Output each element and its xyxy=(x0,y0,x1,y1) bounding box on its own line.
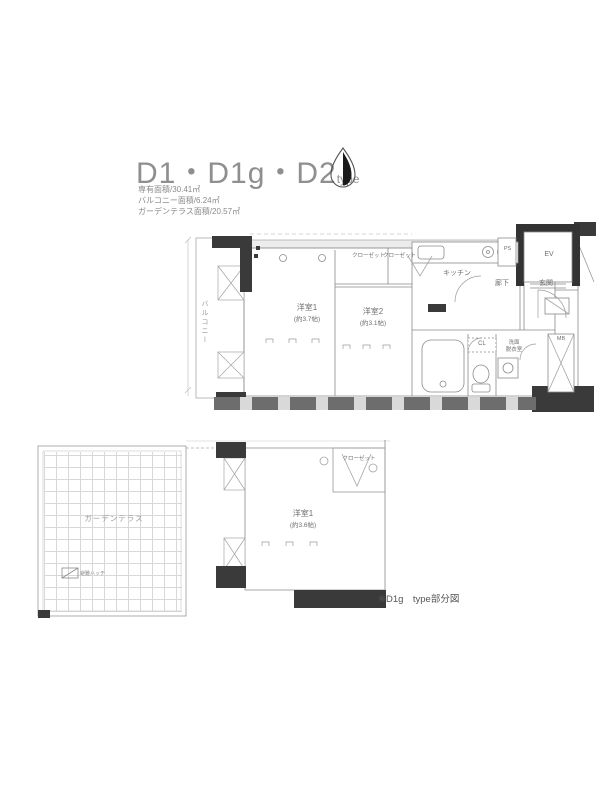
north-compass-icon xyxy=(328,146,358,188)
pipe-shaft-icon xyxy=(498,238,516,266)
sub-plan-windows xyxy=(224,458,245,570)
garden-terrace-label: ガーデンテラス xyxy=(74,513,154,524)
closet1-label: クローゼット xyxy=(352,251,382,259)
washer-drum-icon xyxy=(503,363,513,373)
room1-size: (約3.7帖) xyxy=(276,313,338,323)
escape-hatch-label: 避難ハッチ xyxy=(80,570,105,577)
hall-label: 廊下 xyxy=(488,278,516,288)
bath-faucet-icon xyxy=(440,381,446,387)
meter-box-label: MB xyxy=(550,336,572,342)
ceiling-light-icon xyxy=(319,255,326,262)
sub-room1-name: 洋室1 xyxy=(293,509,313,518)
entrance-label: 玄関 xyxy=(532,278,560,288)
sub-room1-label: 洋室1 (約3.6帖) xyxy=(272,508,334,529)
exterior-dashed-wall xyxy=(214,397,536,410)
hanger-ring-icon xyxy=(369,464,377,472)
toilet-tank-icon xyxy=(472,384,490,392)
hall-door-arc xyxy=(455,276,481,302)
room1-name: 洋室1 xyxy=(297,303,317,312)
toilet-icon xyxy=(473,365,489,383)
room2-name: 洋室2 xyxy=(363,307,383,316)
cl-label: CL xyxy=(469,341,495,347)
sub-room1-size: (約3.6帖) xyxy=(272,519,334,529)
ceiling-light-icon xyxy=(280,255,287,262)
subplan-note: ※D1g type部分図 xyxy=(378,591,459,605)
balcony-label: バルコニー xyxy=(199,294,209,350)
kitchen-label: キッチン xyxy=(436,268,478,278)
elevator-label: EV xyxy=(538,251,560,258)
ceiling-light-icon xyxy=(320,457,328,465)
sub-plan-walls xyxy=(38,440,390,616)
sub-closet-label: クローゼット xyxy=(336,454,382,462)
washroom-line2: 脱衣室 xyxy=(496,347,532,354)
washroom-label: 洗面 脱衣室 xyxy=(496,340,532,354)
room1-label: 洋室1 (約3.7帖) xyxy=(276,302,338,323)
room2-label: 洋室2 (約3.1帖) xyxy=(342,306,404,327)
washroom-line1: 洗面 xyxy=(508,340,519,346)
pipe-shaft-label: PS xyxy=(500,246,515,252)
fridge-space-icon xyxy=(428,304,446,312)
room2-size: (約3.1帖) xyxy=(342,317,404,327)
closet2-label: クローゼット xyxy=(383,251,413,259)
note-legend-square xyxy=(366,596,372,602)
floorplan-page: D1・D1g・D2type 専有面積/30.41㎡ バルコニー面積/6.24㎡ … xyxy=(0,0,600,800)
sub-plan-pillars xyxy=(38,442,386,618)
